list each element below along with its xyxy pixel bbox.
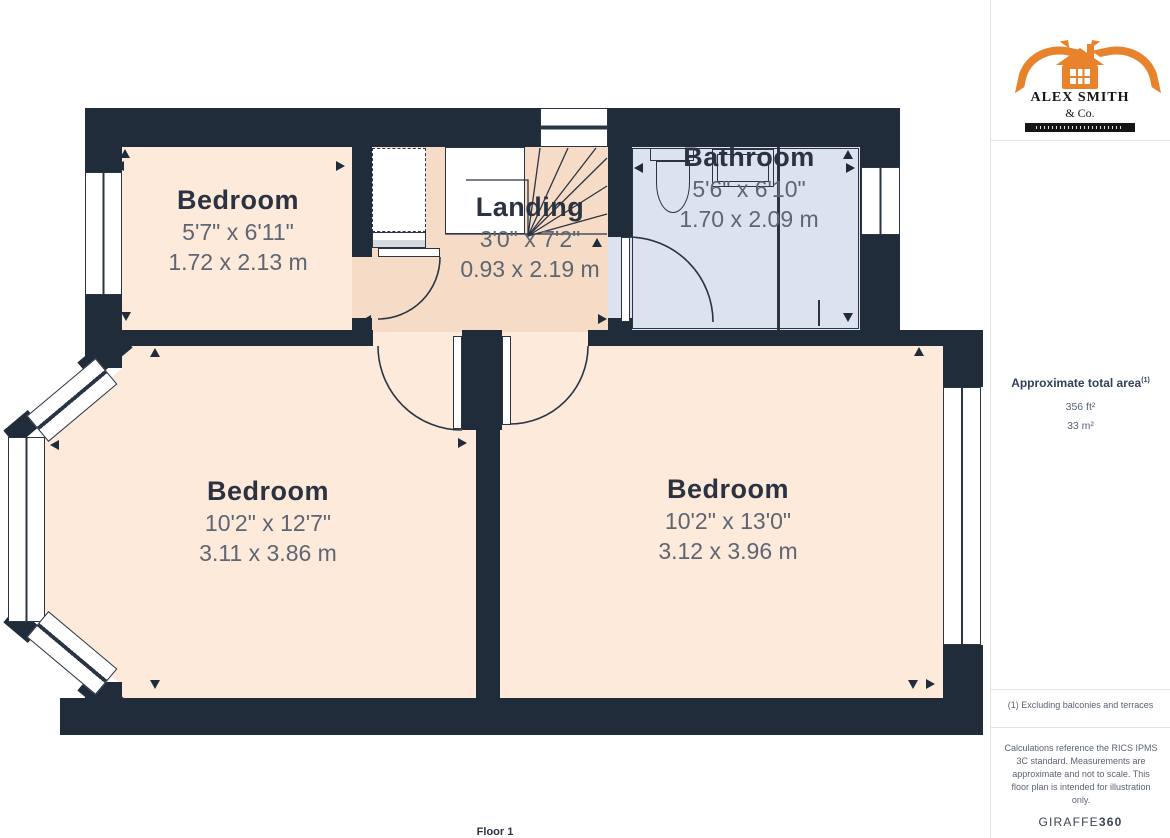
area-footnote: (1) Excluding balconies and terraces [991, 700, 1170, 710]
dimension-arrow [150, 348, 160, 357]
floorplan-canvas: Bedroom 5'7" x 6'11" 1.72 x 2.13 m Landi… [0, 0, 990, 838]
room-dim-metric: 3.12 x 3.96 m [658, 536, 797, 566]
dimension-arrow [914, 347, 924, 356]
door-arc-bedroom-bottom-right [510, 346, 588, 424]
door-swing-arrow [598, 314, 607, 324]
room-dim-imperial: 3'0" x 7'2" [460, 224, 599, 254]
door-arc-bathroom [628, 237, 713, 322]
total-area-metric: 33 m² [991, 417, 1170, 436]
logo-text-line2: & Co. [990, 106, 1170, 121]
room-name: Bedroom [658, 472, 797, 506]
room-dim-imperial: 5'6" x 6'10" [679, 174, 818, 204]
total-area-imperial: 356 ft² [991, 398, 1170, 417]
door-arc-bedroom-top-left [378, 257, 440, 319]
total-area-label: Approximate total area(1) [991, 376, 1170, 390]
room-name: Bedroom [168, 183, 307, 217]
room-name: Landing [460, 190, 599, 224]
label-bedroom-bottom-right: Bedroom 10'2" x 13'0" 3.12 x 3.96 m [658, 472, 797, 566]
room-dim-imperial: 10'2" x 13'0" [658, 506, 797, 536]
room-dim-imperial: 5'7" x 6'11" [168, 217, 307, 247]
room-dim-metric: 1.70 x 2.09 m [679, 204, 818, 234]
plan-linework [0, 0, 990, 838]
dimension-arrow [843, 313, 853, 322]
disclaimer: Calculations reference the RICS IPMS 3C … [1003, 742, 1159, 807]
dimension-arrow [486, 681, 495, 691]
dimension-arrow [150, 680, 160, 689]
sidebar-divider [991, 140, 1170, 141]
door-swing-arrow [362, 315, 371, 325]
brand-name: GIRAFFE [1038, 815, 1098, 829]
room-name: Bedroom [199, 474, 337, 508]
logo-house-window [1070, 69, 1090, 84]
sidebar-divider [991, 689, 1170, 690]
total-area-label-text: Approximate total area [1011, 376, 1141, 390]
label-bathroom: Bathroom 5'6" x 6'10" 1.70 x 2.09 m [679, 140, 818, 234]
dimension-arrow [115, 161, 124, 171]
logo-banner [1025, 123, 1135, 132]
dimension-arrow [634, 163, 643, 173]
total-area-block: Approximate total area(1) 356 ft² 33 m² [991, 376, 1170, 436]
room-dim-imperial: 10'2" x 12'7" [199, 508, 337, 538]
room-dim-metric: 3.11 x 3.86 m [199, 538, 337, 568]
dimension-arrow [121, 312, 131, 321]
logo-roof-icon [1056, 48, 1104, 65]
room-dim-metric: 1.72 x 2.13 m [168, 247, 307, 277]
label-bedroom-top-left: Bedroom 5'7" x 6'11" 1.72 x 2.13 m [168, 183, 307, 277]
sidebar-divider [991, 727, 1170, 728]
agency-logo: ALEX SMITH & Co. [990, 28, 1170, 140]
dimension-arrow [120, 149, 130, 158]
total-area-superscript: (1) [1141, 377, 1150, 384]
dimension-arrow [846, 163, 855, 173]
room-name: Bathroom [679, 140, 818, 174]
dimension-arrow [336, 161, 345, 171]
floor-label: Floor 1 [477, 826, 514, 838]
brand-mark: GIRAFFE360 [991, 815, 1170, 829]
dimension-arrow [908, 680, 918, 689]
label-bedroom-bottom-left: Bedroom 10'2" x 12'7" 3.11 x 3.86 m [199, 474, 337, 568]
dimension-arrow [50, 440, 59, 450]
dimension-arrow [926, 679, 935, 689]
room-dim-metric: 0.93 x 2.19 m [460, 254, 599, 284]
logo-text-line1: ALEX SMITH [990, 90, 1170, 106]
dimension-arrow [458, 438, 467, 448]
brand-suffix: 360 [1099, 815, 1123, 829]
door-arc-bedroom-bottom-left [378, 346, 462, 430]
label-landing: Landing 3'0" x 7'2" 0.93 x 2.19 m [460, 190, 599, 284]
dimension-arrow [843, 150, 853, 159]
